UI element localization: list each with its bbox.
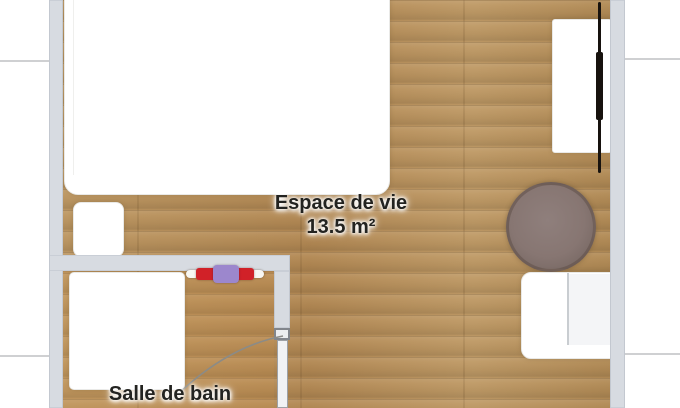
label-bathroom: Salle de bain — [90, 382, 250, 406]
floor-plan: Espace de vie 13.5 m² Salle de bain — [0, 0, 680, 408]
living-room-area: 13.5 m² — [241, 215, 441, 239]
label-living-room: Espace de vie 13.5 m² — [241, 191, 441, 239]
living-room-name: Espace de vie — [241, 191, 441, 215]
bathroom-name: Salle de bain — [90, 382, 250, 406]
